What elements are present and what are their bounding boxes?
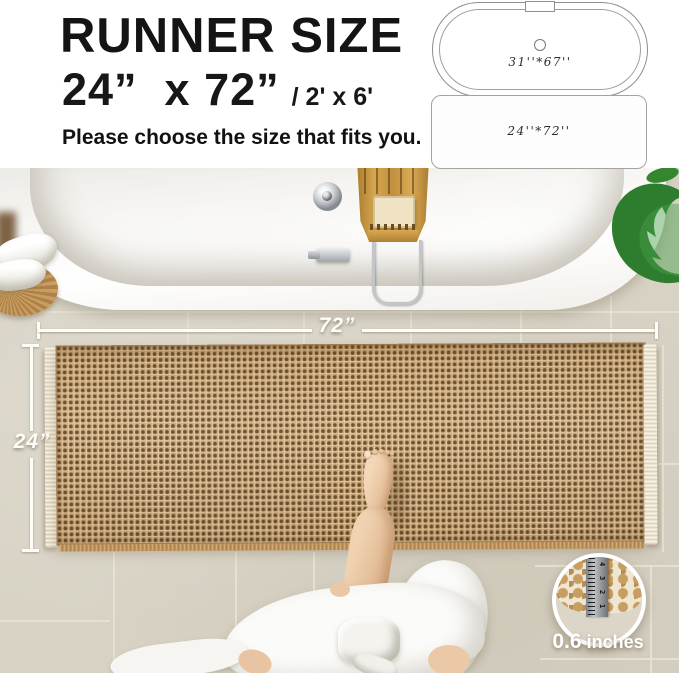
tub-size-diagram: 31''*67'' bbox=[432, 2, 648, 97]
tile-grout bbox=[650, 566, 652, 673]
width-arrow-line bbox=[362, 329, 657, 332]
knee bbox=[428, 645, 470, 673]
height-arrow-line bbox=[30, 346, 33, 431]
height-arrow-cap-bottom bbox=[22, 549, 39, 552]
size-primary: 24” x 72” bbox=[62, 64, 280, 116]
header: RUNNER SIZE 24” x 72” / 2' x 6' Please c… bbox=[0, 0, 679, 168]
ruler-number: 4 bbox=[598, 562, 606, 570]
tile-grout bbox=[0, 311, 679, 313]
width-dimension-label: 72” bbox=[310, 314, 364, 338]
pile-height-unit: inches bbox=[587, 632, 644, 652]
tile-grout bbox=[540, 658, 679, 660]
ruler-ticks bbox=[588, 558, 595, 616]
runner-size-label: 24''*72'' bbox=[432, 124, 646, 138]
ruler-number: 1 bbox=[598, 604, 606, 612]
caddy-bar bbox=[368, 230, 418, 242]
ruler-number: 3 bbox=[598, 576, 606, 584]
tile-grout bbox=[113, 552, 115, 673]
pile-height-value: 0.6 bbox=[552, 630, 581, 653]
bathroom-photo: 72” 24” 4 3 2 1 0.6inches bbox=[0, 168, 679, 673]
toes bbox=[362, 449, 398, 461]
caddy-chrome-rail bbox=[372, 240, 422, 305]
page-title: RUNNER SIZE bbox=[60, 8, 403, 64]
height-dimension-label: 24” bbox=[8, 430, 56, 454]
height-arrow-line bbox=[30, 458, 33, 550]
rug-waffle-weave bbox=[55, 342, 646, 545]
size-line: 24” x 72” / 2' x 6' bbox=[62, 64, 373, 116]
monstera-leaf bbox=[600, 174, 679, 292]
ruler: 4 3 2 1 bbox=[586, 557, 608, 617]
width-arrow-line bbox=[38, 329, 312, 332]
pile-height-label: 0.6inches bbox=[518, 630, 678, 654]
size-secondary: / 2' x 6' bbox=[292, 83, 373, 112]
caddy-slats bbox=[364, 168, 422, 194]
product-size-infographic: RUNNER SIZE 24” x 72” / 2' x 6' Please c… bbox=[0, 0, 679, 673]
tub-faucet-handle bbox=[316, 248, 350, 262]
tub-drain bbox=[313, 182, 342, 211]
runner-rug bbox=[44, 342, 657, 551]
runner-size-diagram: 24''*72'' bbox=[431, 95, 647, 169]
hand bbox=[330, 582, 350, 597]
rug-fringe-right bbox=[643, 344, 657, 544]
tub-drain-mark bbox=[534, 39, 546, 51]
tile-grout bbox=[656, 463, 679, 465]
tub-faucet-mark bbox=[525, 1, 555, 12]
ruler-number: 2 bbox=[598, 590, 606, 598]
size-instruction: Please choose the size that fits you. bbox=[62, 126, 421, 150]
bathrobe-hem bbox=[108, 634, 249, 673]
tile-grout bbox=[610, 296, 612, 344]
tile-grout bbox=[662, 345, 664, 552]
width-arrow-cap-right bbox=[655, 322, 658, 339]
tub-size-label: 31''*67'' bbox=[433, 55, 647, 69]
tile-grout bbox=[0, 620, 110, 622]
bamboo-bath-caddy bbox=[356, 168, 430, 242]
